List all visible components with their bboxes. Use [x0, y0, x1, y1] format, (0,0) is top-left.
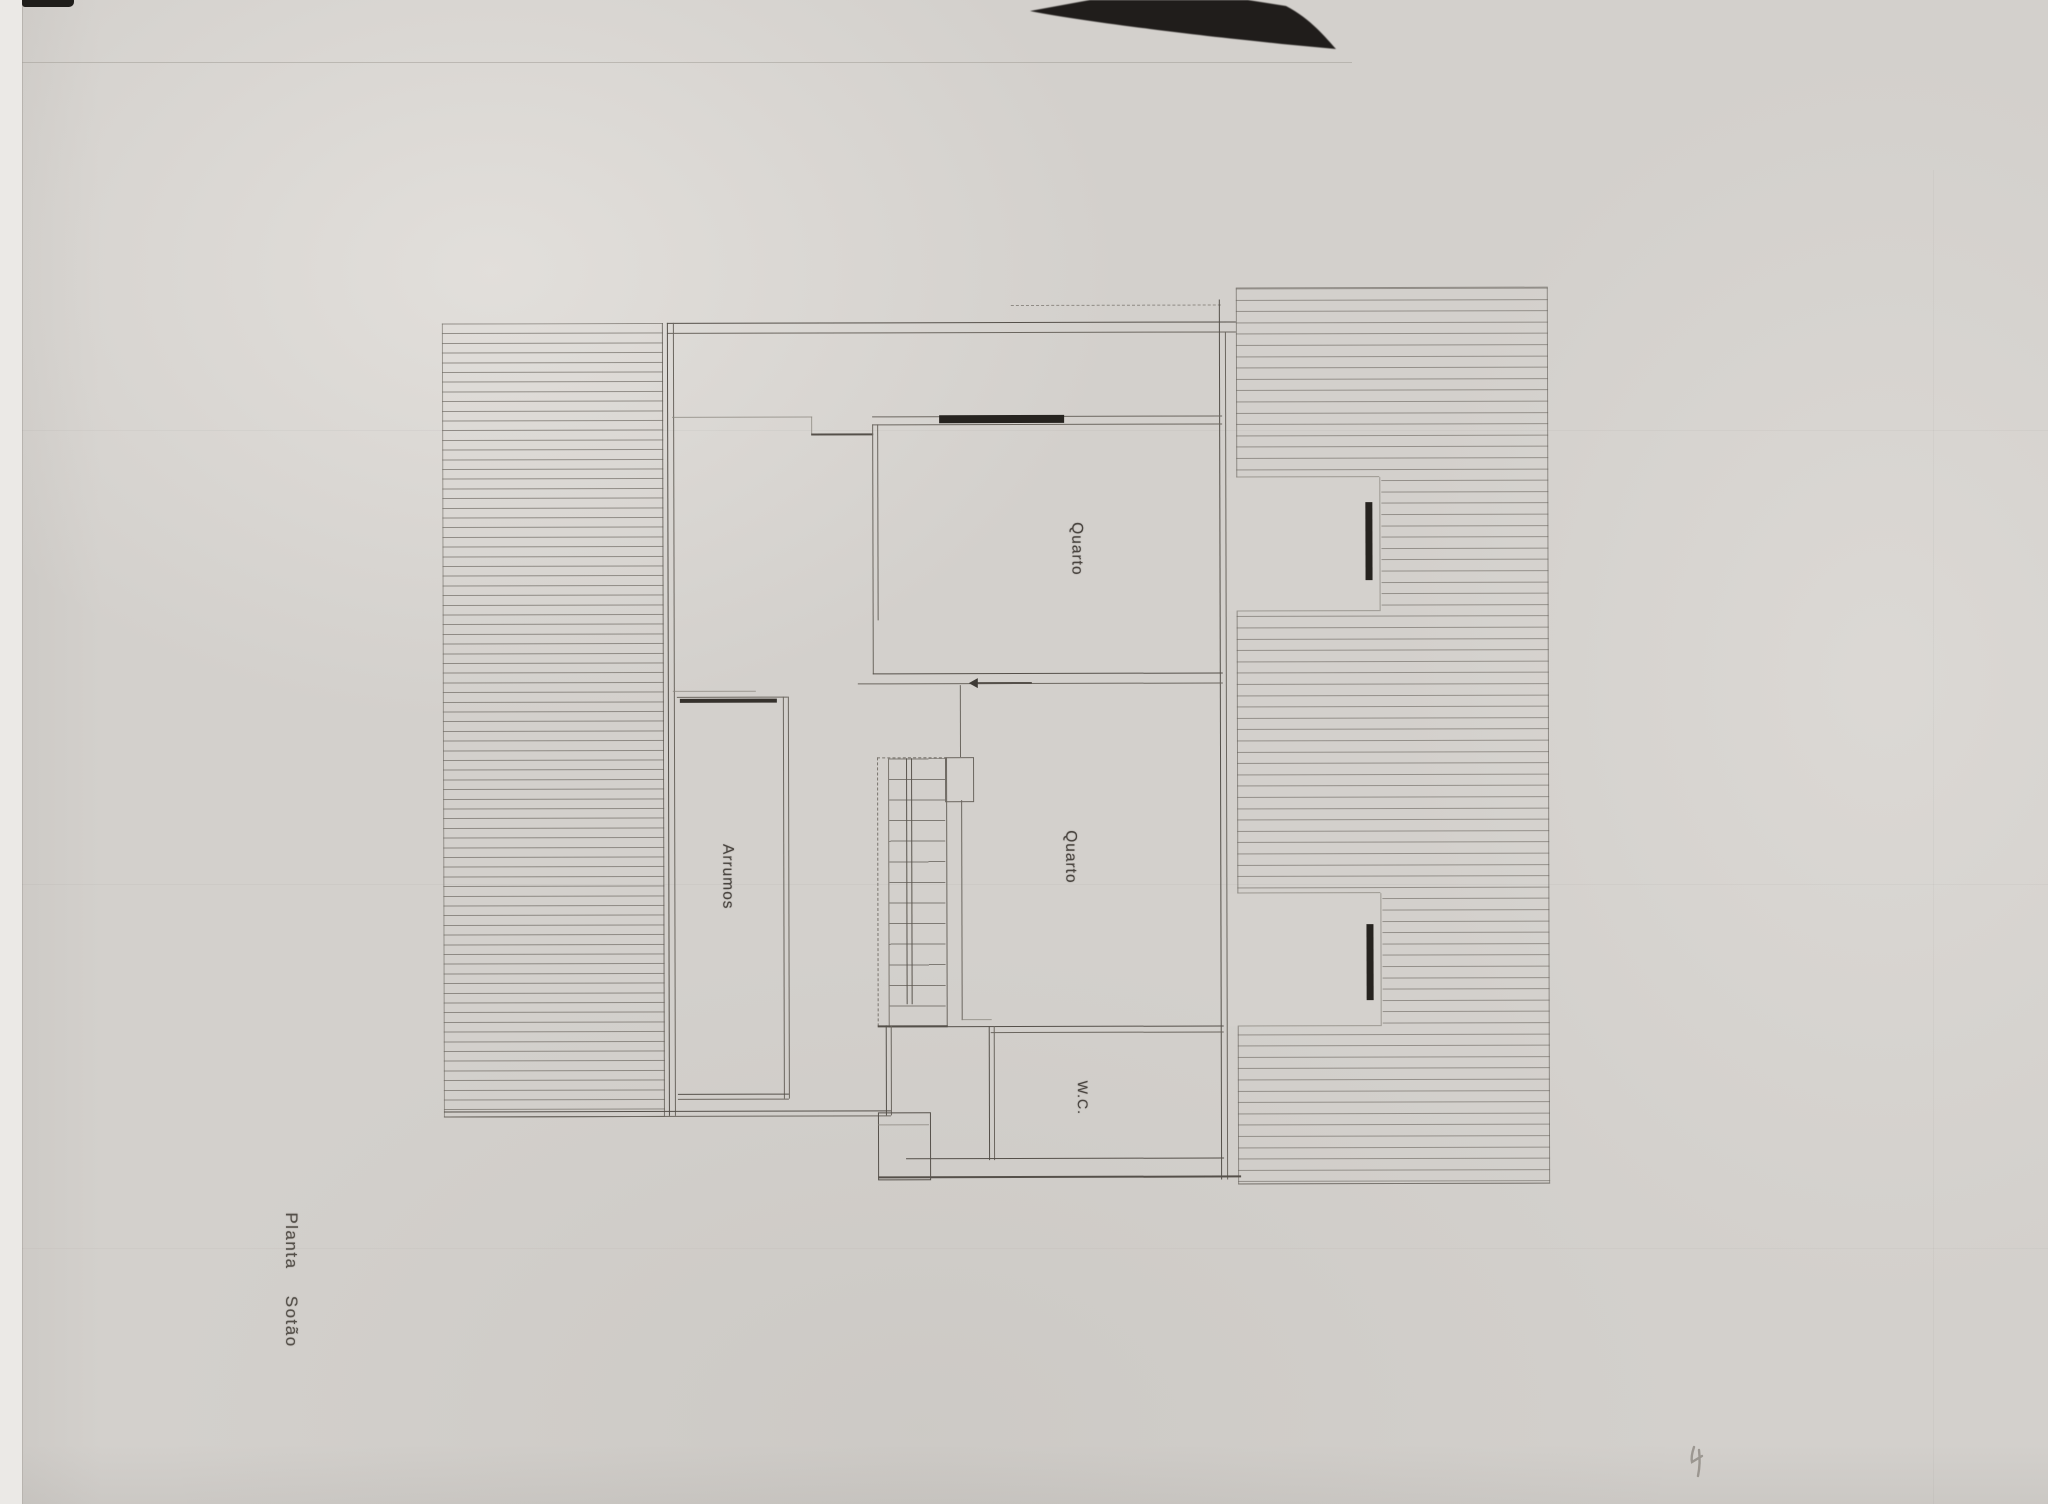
stair-treads — [888, 758, 946, 1026]
room-label-quarto-middle: Quarto — [1061, 830, 1079, 883]
room-label-arrumos: Arrumos — [718, 844, 736, 910]
stair-landing — [945, 757, 974, 802]
wall-segment — [906, 1157, 1224, 1159]
wall-segment — [991, 1031, 1224, 1033]
wall-segment — [962, 1019, 992, 1020]
scanned-floor-plan-page: Quarto Quarto Arrumos W.C. Planta Sotão — [0, 0, 2048, 1504]
wall-segment — [667, 331, 1236, 333]
roof-notch-lower — [1228, 893, 1382, 1026]
staircase — [877, 757, 948, 1026]
chimney-box — [878, 1112, 931, 1180]
wall-segment — [678, 1099, 789, 1100]
wall-segment — [678, 1094, 789, 1095]
wall-segment — [811, 433, 873, 435]
wall-segment — [994, 1026, 995, 1160]
caption-planta-sotao: Planta Sotão — [281, 1212, 301, 1347]
stair-rail — [906, 758, 913, 1004]
wall-segment — [877, 424, 879, 620]
wall-segment — [673, 691, 756, 692]
room-label-quarto-top: Quarto — [1067, 522, 1085, 575]
floor-plan-drawing: Quarto Quarto Arrumos W.C. — [0, 0, 2048, 1504]
wall-segment-dashed — [1011, 304, 1221, 306]
wall-segment — [872, 424, 874, 674]
roof-notch-upper — [1227, 477, 1381, 611]
window-marker — [1365, 502, 1372, 580]
roof-hatch-left — [442, 323, 665, 1118]
wall-segment — [783, 697, 785, 1099]
room-label-wc: W.C. — [1075, 1081, 1091, 1115]
wall-segment — [444, 1115, 891, 1117]
wall-segment — [872, 423, 1222, 425]
wall-segment — [873, 672, 1223, 674]
wall-segment — [672, 417, 812, 418]
wall-segment — [673, 323, 676, 1116]
wall-segment — [811, 417, 812, 435]
pencil-mark — [1688, 1444, 1714, 1480]
wall-segment — [667, 321, 1236, 323]
wall-segment — [444, 1110, 891, 1112]
wall-segment — [961, 800, 963, 1020]
wall-segment — [891, 1025, 892, 1115]
stair-arrowhead-icon — [969, 678, 978, 688]
wall-segment — [878, 1124, 929, 1125]
wall-segment — [788, 697, 790, 1099]
wall-segment — [889, 1025, 1224, 1027]
wall-segment — [989, 1026, 990, 1160]
wall-segment — [878, 1175, 1241, 1178]
window-marker — [939, 415, 1064, 423]
wall-segment — [1225, 331, 1228, 1179]
wall-segment — [1219, 299, 1222, 1179]
wall-segment — [960, 685, 961, 757]
window-marker — [680, 699, 777, 703]
wall-segment — [667, 323, 670, 1116]
wall-segment — [858, 682, 1223, 684]
wall-segment — [886, 1025, 887, 1115]
stair-direction-arrow — [975, 682, 1032, 684]
roof-hatch-right — [1236, 287, 1550, 1185]
window-marker — [1366, 924, 1373, 1000]
